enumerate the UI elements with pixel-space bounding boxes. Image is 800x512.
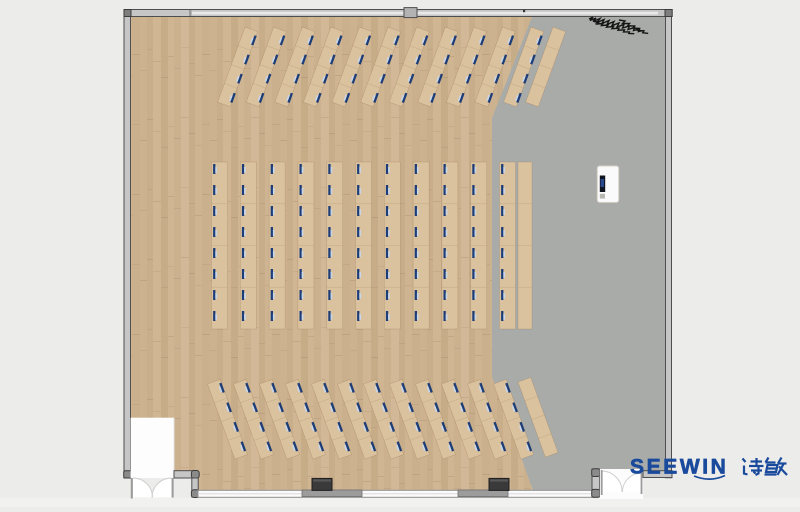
svg-text:SEEWIN: SEEWIN (630, 456, 728, 479)
